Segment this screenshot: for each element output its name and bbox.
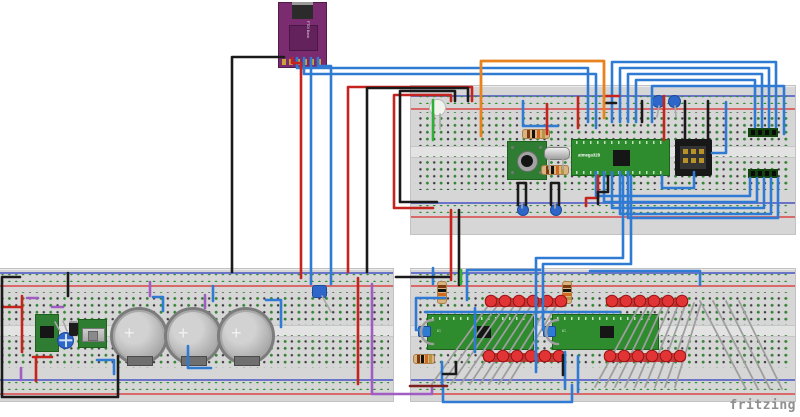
ic-label: IC: [437, 329, 441, 334]
power-rail-holes[interactable]: [415, 96, 791, 104]
crystal-oscillator[interactable]: [544, 147, 570, 160]
ftdi-pin[interactable]: [282, 59, 286, 65]
coin-cell-battery[interactable]: +: [110, 307, 168, 365]
dip-ic-right[interactable]: IC: [552, 314, 659, 350]
atmega328-breakout[interactable]: atmega328: [571, 139, 670, 176]
mini-usb-connector-icon: [292, 2, 313, 19]
ftdi-pin[interactable]: [296, 59, 300, 65]
resistor[interactable]: [562, 281, 572, 304]
power-rail-positive-line: [411, 393, 795, 395]
ftdi-pin[interactable]: [303, 59, 307, 65]
power-rail-positive-line: [0, 285, 393, 287]
ceramic-capacitor[interactable]: [668, 95, 681, 108]
ftdi-pin[interactable]: [310, 59, 314, 65]
battery-clip: [181, 356, 207, 366]
fritzing-watermark: fritzing: [729, 398, 796, 413]
resistor[interactable]: [437, 281, 447, 304]
slide-switch-board[interactable]: [78, 319, 107, 348]
coin-cell-battery[interactable]: +: [164, 307, 222, 365]
battery-clip: [127, 356, 153, 366]
resistor[interactable]: [541, 165, 569, 175]
power-rail-positive-line: [411, 216, 795, 218]
trimmer-capacitor[interactable]: [312, 285, 327, 298]
pin-header-4[interactable]: [748, 128, 778, 137]
voltage-regulator-board[interactable]: [35, 314, 59, 352]
power-rail-holes[interactable]: [0, 382, 389, 390]
mcu-chip-icon: [613, 150, 630, 166]
wire-end-plug[interactable]: [543, 326, 556, 337]
regulator-chip-icon: [40, 326, 54, 338]
power-rail-holes[interactable]: [415, 205, 791, 213]
power-rail-negative-line: [411, 379, 795, 381]
battery-plus-mark: +: [231, 323, 242, 344]
icsp-header[interactable]: [675, 139, 712, 176]
power-rail-positive-line: [411, 108, 795, 110]
pin-number-row: [557, 317, 654, 320]
ftdi-chip-icon: [289, 25, 318, 51]
switch-knob[interactable]: [88, 331, 98, 341]
wire-black[interactable]: [232, 57, 284, 272]
fritzing-canvas: FTDI Basic atmega328: [0, 0, 800, 417]
ftdi-pin[interactable]: [289, 59, 293, 65]
resistor[interactable]: [413, 354, 435, 364]
ftdi-pin[interactable]: [317, 59, 321, 65]
power-rail-negative-line: [411, 202, 795, 204]
wire-red[interactable]: [292, 58, 301, 278]
power-rail-positive-line: [0, 393, 393, 395]
coin-cell-battery[interactable]: +: [217, 307, 275, 365]
ftdi-board-label: FTDI Basic: [306, 21, 310, 38]
power-rail-positive-line: [411, 285, 795, 287]
mount-pin: [511, 171, 514, 174]
slide-switch[interactable]: [82, 328, 105, 342]
pin-row: [576, 141, 665, 144]
ic-marking: [477, 326, 491, 338]
ceramic-capacitor[interactable]: [517, 204, 529, 216]
power-rail-negative-line: [0, 379, 393, 381]
battery-plus-mark: +: [124, 323, 135, 344]
dip-ic-left[interactable]: IC: [427, 314, 534, 350]
power-rail-holes[interactable]: [415, 382, 791, 390]
battery-plus-mark: +: [178, 323, 189, 344]
ceramic-capacitor[interactable]: [550, 204, 562, 216]
ic-marking: [600, 326, 614, 338]
resistor[interactable]: [522, 129, 550, 139]
push-button[interactable]: [521, 155, 533, 167]
pin-number-row: [432, 317, 529, 320]
wire-end-plug[interactable]: [418, 326, 431, 337]
ceramic-capacitor[interactable]: [652, 95, 665, 108]
pin-row: [576, 171, 665, 174]
pin-header-4[interactable]: [748, 169, 778, 178]
white-led[interactable]: [429, 99, 446, 116]
wire-blue[interactable]: [318, 58, 331, 284]
mount-pin: [511, 146, 514, 149]
power-rail-holes[interactable]: [0, 274, 389, 282]
mount-pin: [539, 146, 542, 149]
ic-label: IC: [562, 329, 566, 334]
electrolytic-capacitor[interactable]: [69, 321, 78, 336]
mcu-label: atmega328: [578, 153, 600, 158]
battery-clip: [234, 356, 260, 366]
power-rail-holes[interactable]: [415, 274, 791, 282]
ftdi-breakout-board[interactable]: FTDI Basic: [278, 2, 327, 68]
